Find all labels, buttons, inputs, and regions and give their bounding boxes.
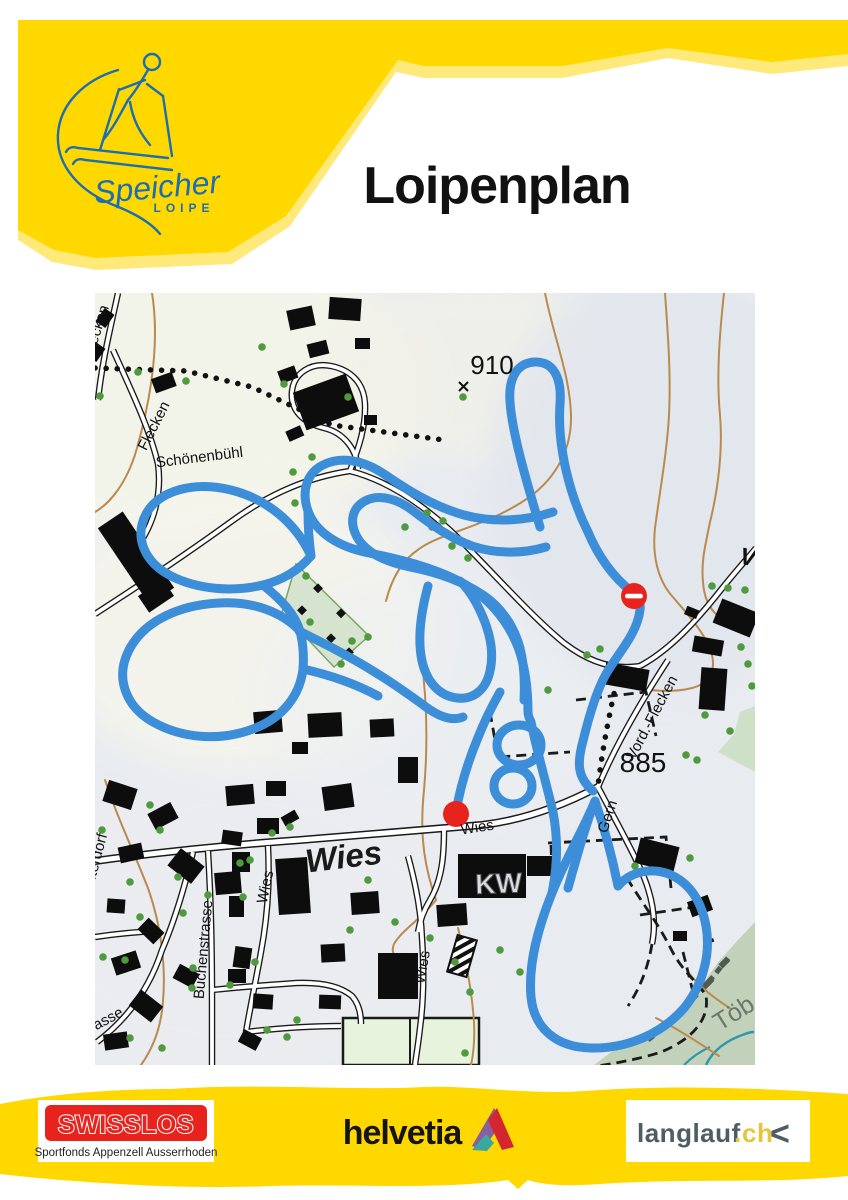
label-elevation-885: 885 bbox=[620, 747, 667, 778]
loipenplan-poster: Speicher LOIPE Loipenplan bbox=[0, 0, 848, 1200]
helvetia-wordmark: helvetia bbox=[343, 1114, 464, 1152]
page-title: Loipenplan bbox=[146, 156, 848, 216]
sports-field bbox=[343, 1018, 479, 1065]
swisslos-logo[interactable]: SWISSLOS Sportfonds Appenzell Ausserrhod… bbox=[35, 1100, 218, 1162]
sponsor-footer: SWISSLOS Sportfonds Appenzell Ausserrhod… bbox=[0, 1080, 848, 1200]
langlauf-dot: . bbox=[734, 1118, 741, 1148]
trail-map[interactable]: Flecken Flecken Schönenbühl 910 -Vord.-F… bbox=[95, 293, 755, 1065]
langlauf-tld: ch bbox=[742, 1118, 773, 1148]
swisslos-tagline: Sportfonds Appenzell Ausserrhoden bbox=[35, 1147, 218, 1159]
langlauf-chevron-icon: < bbox=[770, 1115, 790, 1153]
label-kw: KW bbox=[475, 867, 523, 900]
label-peak-910: 910 bbox=[470, 350, 513, 380]
label-v-partial: V bbox=[738, 543, 755, 572]
langlauf-logo[interactable]: langlauf . ch < bbox=[626, 1100, 810, 1162]
header-banner: Speicher LOIPE bbox=[0, 0, 848, 280]
swisslos-wordmark: SWISSLOS bbox=[58, 1111, 194, 1139]
no-entry-marker bbox=[621, 583, 647, 609]
langlauf-wordmark: langlauf bbox=[637, 1118, 741, 1148]
